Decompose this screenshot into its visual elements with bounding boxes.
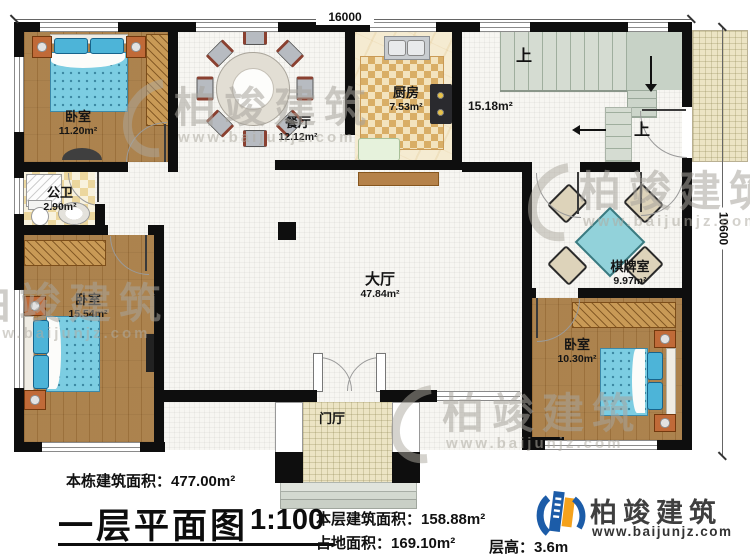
pillow — [33, 320, 49, 354]
stair-arrow-line — [580, 129, 606, 131]
door-leaf — [640, 172, 642, 212]
wall — [380, 390, 437, 402]
window — [196, 22, 278, 32]
room-label-foyer: 门厅 — [302, 412, 362, 427]
room-label-dining: 餐厅 12.12m² — [258, 116, 338, 143]
logo-icon — [536, 487, 586, 541]
wardrobe — [24, 240, 106, 266]
entry-door-leaf — [376, 353, 386, 392]
wall — [580, 162, 640, 172]
wall — [522, 288, 536, 298]
bed-sheet-fold — [632, 349, 645, 413]
room-label-kitchen: 厨房 7.53m² — [366, 86, 446, 113]
wall — [275, 160, 462, 170]
door-leaf — [97, 172, 99, 202]
wall — [345, 22, 355, 135]
pillow — [33, 355, 49, 389]
stair-arrow-left — [572, 125, 580, 135]
stair-arrow-line — [650, 56, 652, 86]
dining-chair — [297, 77, 314, 101]
door-leaf — [536, 298, 538, 338]
fridge — [358, 138, 400, 161]
wall — [522, 162, 532, 450]
floor-area-line: 本层建筑面积：158.88m² — [316, 508, 485, 529]
room-label-hall: 大厅 47.84m² — [335, 271, 425, 300]
nightstand — [24, 296, 46, 316]
nightstand — [654, 414, 676, 432]
stairs-up-label: 上 — [634, 116, 650, 140]
wall — [14, 162, 128, 172]
foyer-sidewall-right — [392, 402, 420, 456]
door-leaf — [577, 172, 579, 214]
wall — [164, 390, 317, 402]
stair-arrow-down — [645, 84, 657, 92]
building-area-line: 本栋建筑面积：477.00m² — [66, 470, 235, 491]
sink-basin — [407, 40, 425, 56]
pillow — [54, 38, 88, 54]
wardrobe — [146, 34, 170, 126]
nightstand — [654, 330, 676, 348]
window — [437, 391, 520, 401]
wall — [154, 225, 164, 452]
sink-basin — [388, 40, 406, 56]
window — [40, 22, 118, 32]
dining-table-center — [232, 68, 274, 110]
nightstand — [126, 36, 146, 58]
floor-plan-canvas: 上 上 — [0, 0, 750, 557]
land-area-line: 占地面积：169.10m² — [316, 532, 455, 553]
watermark-swoosh-icon — [0, 259, 10, 368]
window — [14, 57, 24, 132]
window — [370, 22, 436, 32]
tv — [146, 334, 154, 372]
wall — [578, 288, 692, 298]
nightstand — [24, 390, 46, 410]
wardrobe — [572, 302, 676, 328]
room-label-bedroom2: 卧室 15.54m² — [48, 293, 128, 320]
window — [14, 178, 24, 214]
stair-landing — [627, 32, 682, 90]
foyer-pillar-left — [275, 452, 303, 483]
dimension-right-label: 10600 — [716, 208, 731, 250]
wall — [14, 225, 108, 235]
nightstand — [32, 36, 52, 58]
room-label-stair-hall: 15.18m² — [468, 100, 530, 114]
room-label-bedroom3: 卧室 10.30m² — [535, 338, 619, 365]
room-label-mahjong: 棋牌室 9.97m² — [588, 260, 672, 287]
window — [628, 22, 668, 32]
wall — [168, 22, 178, 172]
wall — [682, 158, 692, 450]
hall-column — [278, 222, 296, 240]
foyer-sidewall-left — [275, 402, 303, 456]
stairs-up-label: 上 — [516, 42, 532, 66]
window — [480, 22, 530, 32]
wall — [452, 22, 462, 170]
pillow — [90, 38, 124, 54]
dimension-top-label: 16000 — [316, 10, 374, 25]
wall — [682, 22, 692, 107]
window — [14, 290, 24, 388]
page-title: 一层平面图 — [58, 498, 248, 549]
window — [42, 442, 140, 452]
pillow — [647, 352, 663, 380]
room-label-bedroom1: 卧室 11.20m² — [38, 110, 118, 137]
title-underline — [58, 543, 334, 546]
dining-chair — [197, 77, 214, 101]
sideboard — [358, 172, 439, 186]
stair-flight-lower — [605, 107, 632, 162]
terrace — [692, 30, 748, 162]
scale-label: 1:100 — [250, 504, 324, 537]
entry-door-leaf — [313, 353, 323, 392]
door-leaf — [642, 109, 686, 111]
door-leaf — [145, 235, 147, 271]
door-leaf — [164, 124, 166, 162]
logo-url: www.baijunjz.com — [592, 524, 733, 539]
bed-headboard — [666, 348, 676, 416]
pillow — [647, 382, 663, 410]
bed-sheet-fold — [47, 317, 61, 389]
room-label-bathroom: 公卫 2.90m² — [25, 186, 95, 213]
foyer-pillar-right — [392, 452, 420, 483]
window — [545, 440, 657, 450]
